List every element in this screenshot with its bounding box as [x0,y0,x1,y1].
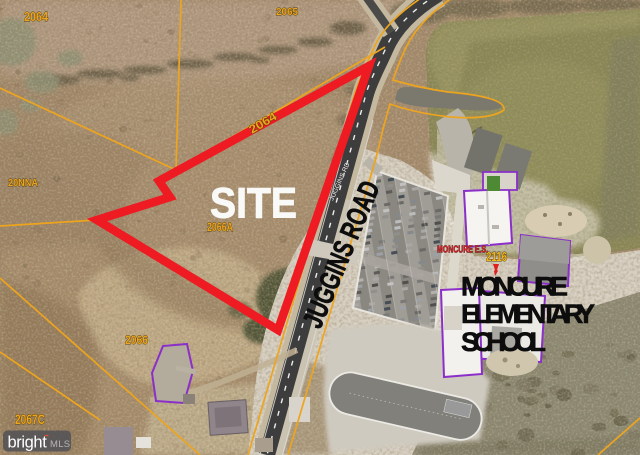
svg-text:2065: 2065 [276,7,298,18]
svg-text:MONCURE: MONCURE [461,272,568,302]
svg-text:ELEMENTARY: ELEMENTARY [461,299,595,329]
svg-text:bright: bright [8,434,48,452]
svg-text:SITE: SITE [210,181,297,228]
svg-text:MLS: MLS [50,439,70,450]
svg-text:2067C: 2067C [15,412,45,427]
svg-text:20NNA: 20NNA [8,177,38,189]
svg-text:2116: 2116 [486,250,507,264]
svg-text:MONCURE E.S.: MONCURE E.S. [437,245,488,256]
svg-text:2064: 2064 [24,9,49,24]
svg-text:2066: 2066 [125,333,148,347]
svg-text:SCHOOL: SCHOOL [461,327,546,357]
